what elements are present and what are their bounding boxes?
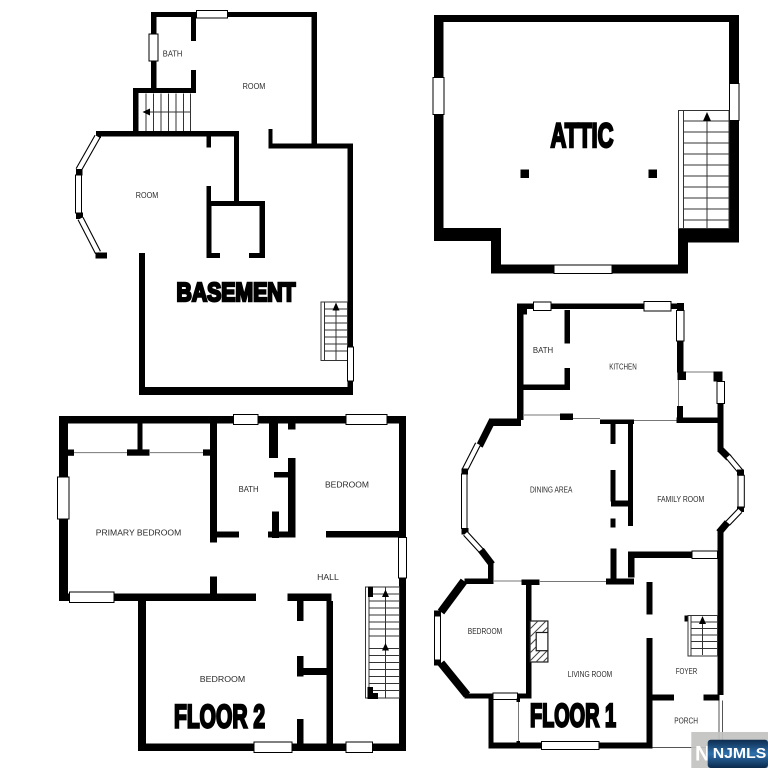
- svg-text:FLOOR 1: FLOOR 1: [530, 697, 616, 733]
- svg-text:KITCHEN: KITCHEN: [609, 361, 637, 371]
- svg-text:BATH: BATH: [163, 49, 183, 59]
- svg-text:BATH: BATH: [533, 345, 553, 355]
- svg-text:BASEMENT: BASEMENT: [177, 277, 296, 307]
- svg-text:LIVING ROOM: LIVING ROOM: [568, 669, 613, 679]
- svg-text:ATTIC: ATTIC: [551, 117, 614, 155]
- svg-text:FOYER: FOYER: [676, 666, 698, 676]
- svg-text:BATH: BATH: [239, 484, 259, 494]
- svg-text:HALL: HALL: [317, 572, 339, 582]
- svg-text:FLOOR 2: FLOOR 2: [174, 699, 265, 735]
- svg-text:BEDROOM: BEDROOM: [468, 626, 502, 636]
- svg-text:FAMILY ROOM: FAMILY ROOM: [657, 494, 704, 504]
- svg-text:PRIMARY BEDROOM: PRIMARY BEDROOM: [96, 528, 182, 538]
- svg-text:BEDROOM: BEDROOM: [325, 480, 369, 490]
- svg-text:ROOM: ROOM: [243, 81, 266, 91]
- svg-text:DINING AREA: DINING AREA: [530, 484, 573, 494]
- svg-text:ROOM: ROOM: [136, 190, 159, 200]
- svg-text:NJMLS: NJMLS: [713, 745, 767, 762]
- svg-text:PORCH: PORCH: [674, 716, 698, 726]
- svg-text:BEDROOM: BEDROOM: [200, 674, 246, 684]
